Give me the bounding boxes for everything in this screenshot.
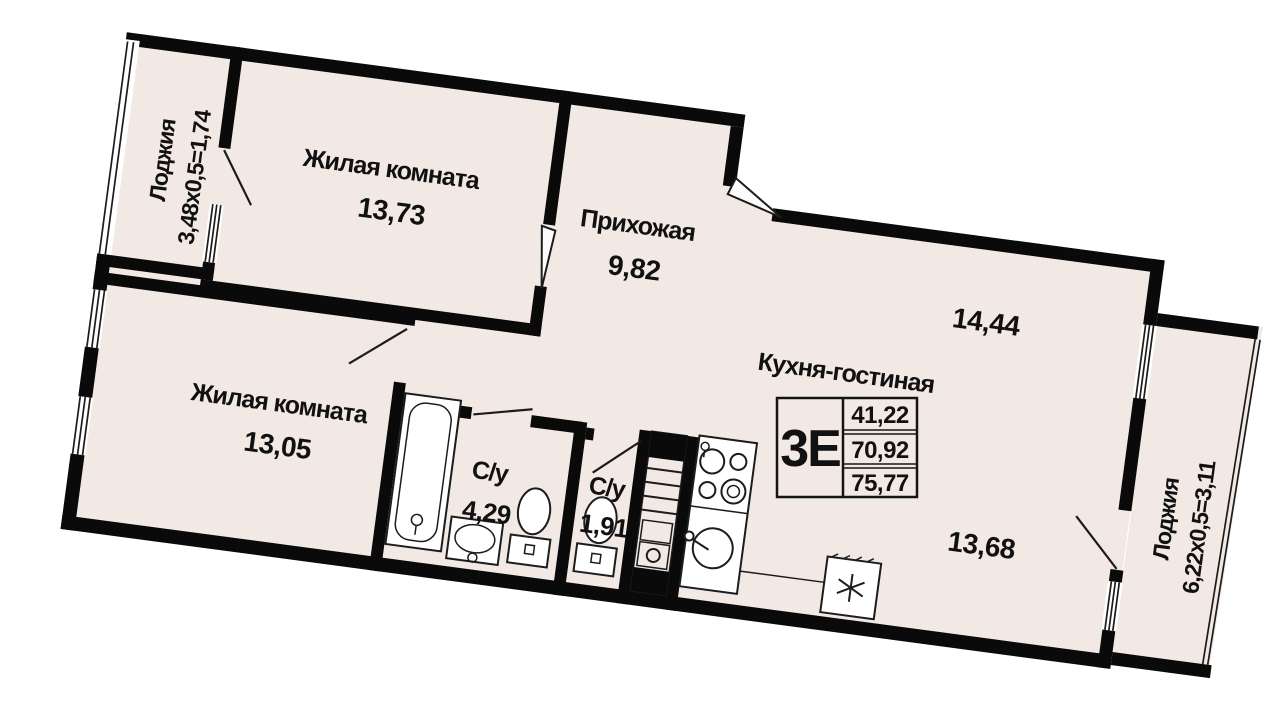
washing-machine-icon — [820, 553, 881, 620]
info-box-value-living: 41,22 — [851, 402, 909, 429]
room-bath-small-label: С/у — [587, 471, 627, 504]
wall-segment — [201, 261, 215, 280]
room-bath-small-area: 1,91 — [578, 508, 630, 544]
info-box-value-total: 75,77 — [851, 470, 909, 497]
room-bath-big-area: 4,29 — [460, 494, 512, 530]
apartment-plan: Жилая комната 13,73 Прихожая 9,82 Жилая … — [56, 32, 1278, 683]
wall-segment — [585, 428, 595, 441]
wall-segment — [402, 312, 415, 325]
floor-plan-page: Жилая комната 13,73 Прихожая 9,82 Жилая … — [0, 0, 1278, 713]
room-bath-big-label: С/у — [470, 456, 510, 489]
floor-plan-canvas: Жилая комната 13,73 Прихожая 9,82 Жилая … — [0, 0, 1278, 713]
info-box-value-area: 70,92 — [851, 437, 909, 464]
apartment-type-label: 3Е — [780, 420, 840, 478]
